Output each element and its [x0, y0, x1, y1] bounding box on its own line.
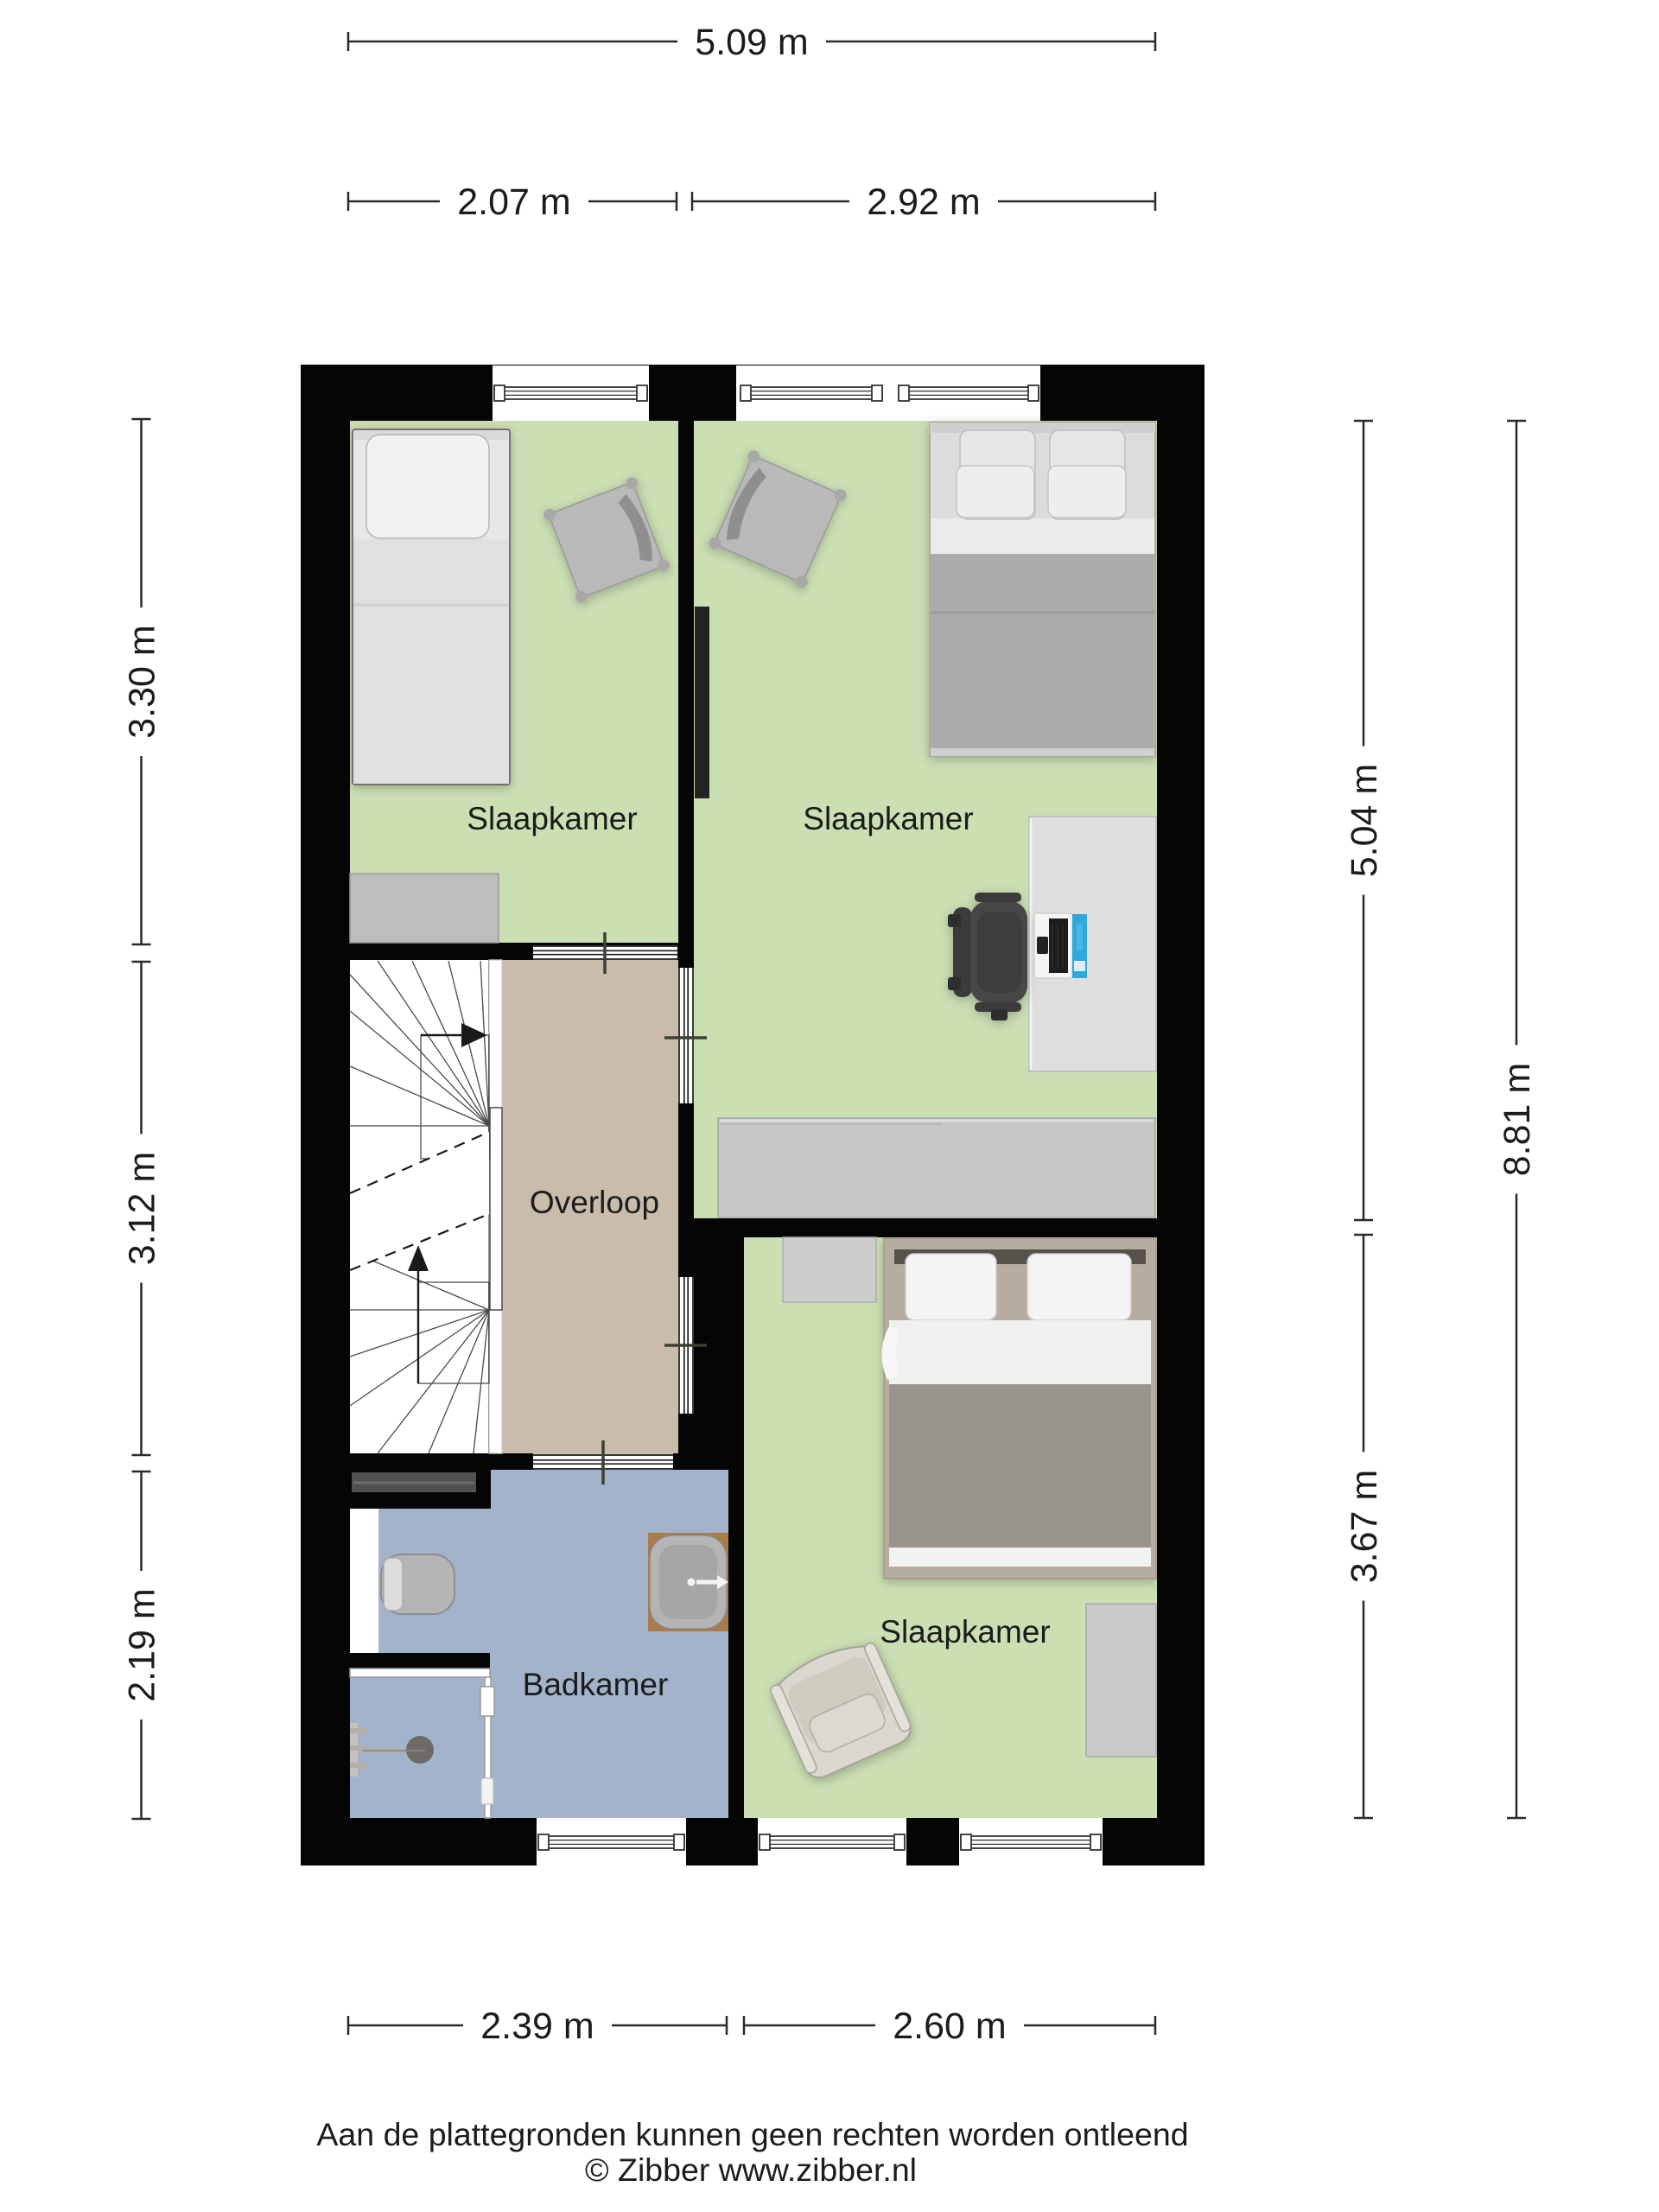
svg-text:3.67 m: 3.67 m — [1344, 1470, 1385, 1583]
svg-text:Overloop: Overloop — [530, 1185, 659, 1220]
svg-text:5.04 m: 5.04 m — [1344, 764, 1385, 877]
svg-text:5.09 m: 5.09 m — [695, 22, 808, 63]
svg-text:3.12 m: 3.12 m — [122, 1152, 163, 1265]
svg-text:Badkamer: Badkamer — [523, 1667, 669, 1702]
svg-text:Aan de plattegronden kunnen ge: Aan de plattegronden kunnen geen rechten… — [316, 2116, 1188, 2152]
svg-text:8.81 m: 8.81 m — [1497, 1063, 1538, 1176]
svg-text:2.60 m: 2.60 m — [893, 2005, 1006, 2047]
svg-text:Slaapkamer: Slaapkamer — [880, 1614, 1050, 1649]
svg-text:3.30 m: 3.30 m — [122, 625, 163, 738]
svg-text:2.19 m: 2.19 m — [122, 1588, 163, 1701]
svg-text:Slaapkamer: Slaapkamer — [467, 801, 637, 836]
svg-text:2.07 m: 2.07 m — [457, 181, 570, 223]
svg-text:Slaapkamer: Slaapkamer — [803, 801, 973, 836]
svg-text:2.39 m: 2.39 m — [480, 2005, 594, 2047]
svg-text:© Zibber www.zibber.nl: © Zibber www.zibber.nl — [585, 2152, 917, 2188]
svg-text:2.92 m: 2.92 m — [867, 181, 980, 223]
